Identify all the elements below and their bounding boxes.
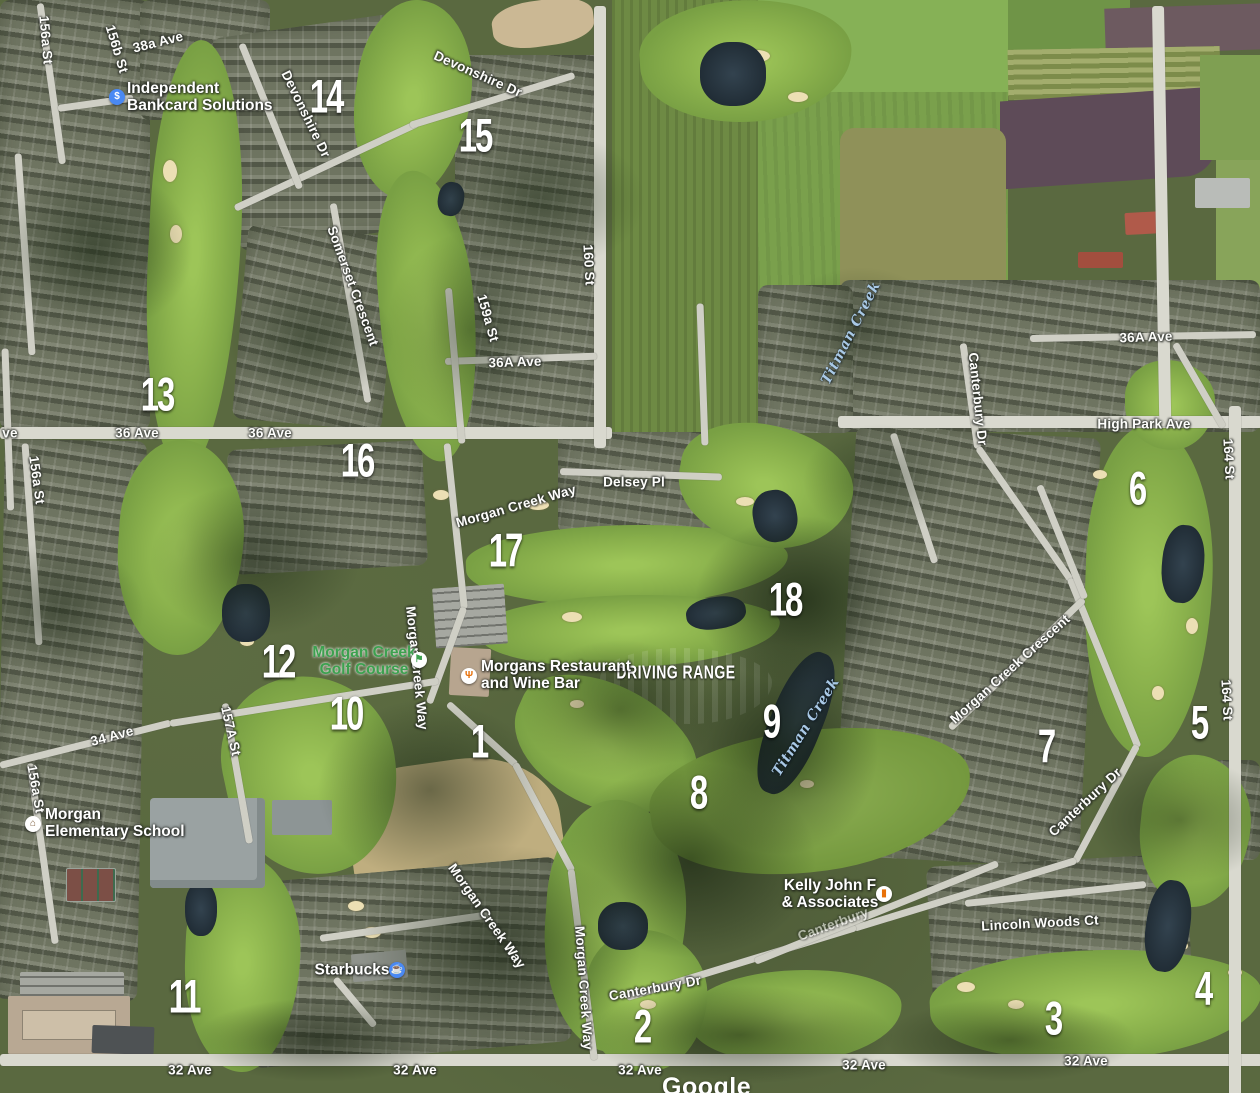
kelly-john-f-associates-icon[interactable]: ▮ [876,886,892,902]
street-label: 36 Ave [115,426,159,441]
street-label: 156a St [36,15,55,65]
hole-marker-7: 7 [1038,723,1054,770]
creek-label: Titman Creek [769,675,843,779]
hole-marker-18: 18 [769,576,801,623]
street-label: 159a St [474,293,502,344]
hole-marker-15: 15 [459,112,491,159]
hole-marker-4: 4 [1195,965,1211,1012]
street-label: 32 Ave [1064,1054,1108,1069]
street-label: 164 St [1220,438,1237,480]
morgan-creek-golf-course-icon[interactable]: ⚑ [411,652,427,668]
street-label: Canterbury Dr [608,973,703,1004]
hole-marker-2: 2 [634,1003,650,1050]
map-label-overlay: 156a St156b St38a AveDevonshire DrDevons… [0,0,1260,1093]
hole-marker-3: 3 [1045,995,1061,1042]
starbucks-icon[interactable]: ☕ [389,962,405,978]
street-label: Delsey Pl [603,475,665,490]
hole-marker-16: 16 [341,437,373,484]
morgan-elementary-school-icon[interactable]: ⌂ [25,816,41,832]
street-label: 34 Ave [89,723,135,749]
creek-label: Titman Creek [818,279,884,387]
poi-label-morgan-creek-golf-course[interactable]: Morgan CreekGolf Course [312,644,415,678]
street-label: ve [2,426,17,441]
independent-bankcard-solutions-icon[interactable]: $ [109,89,125,105]
satellite-map-canvas[interactable]: 156a St156b St38a AveDevonshire DrDevons… [0,0,1260,1093]
street-label: 36A Ave [488,354,542,371]
morgans-restaurant-and-wine-bar-icon[interactable]: Ψ [461,668,477,684]
street-label: High Park Ave [1097,417,1190,432]
street-label: 36A Ave [1119,329,1173,346]
street-label: 157A St [218,705,244,758]
hole-marker-9: 9 [763,698,779,745]
street-label: 156b St [103,23,132,75]
hole-marker-1: 1 [471,718,487,765]
hole-marker-5: 5 [1191,699,1207,746]
hole-marker-14: 14 [310,73,342,120]
street-label: 32 Ave [618,1063,662,1078]
hole-marker-10: 10 [330,690,362,737]
street-label: Canterbury Dr [966,352,991,446]
driving-range-label: DRIVING RANGE [616,663,735,684]
google-watermark[interactable]: Google [662,1073,751,1093]
street-label: Canterbury Dr [1046,765,1125,840]
poi-label-starbucks[interactable]: Starbucks [315,962,390,979]
poi-label-kelly-john-f-associates[interactable]: Kelly John F& Associates [782,877,879,911]
poi-label-morgan-elementary-school[interactable]: MorganElementary School [45,806,185,840]
street-label: 160 St [580,244,597,286]
street-label: Lincoln Woods Ct [981,912,1099,933]
street-label: 156a St [26,455,48,505]
hole-marker-6: 6 [1129,465,1145,512]
street-label: Morgan Creek Way [445,861,529,971]
street-label: 32 Ave [168,1063,212,1078]
street-label: Devonshire Dr [432,48,525,100]
hole-marker-8: 8 [690,769,706,816]
poi-label-morgans-restaurant-and-wine-bar[interactable]: Morgans Restaurantand Wine Bar [481,658,631,692]
street-label: Morgan Creek Way [572,926,596,1051]
hole-marker-12: 12 [262,638,294,685]
street-label: 32 Ave [842,1058,886,1073]
street-label: 32 Ave [393,1063,437,1078]
street-label: 36 Ave [248,426,292,441]
street-label: Morgan Creek Crescent [947,611,1073,726]
street-label: 38a Ave [131,28,185,55]
poi-label-independent-bankcard-solutions[interactable]: IndependentBankcard Solutions [127,80,273,114]
street-label: Somerset Crescent [324,224,381,348]
hole-marker-13: 13 [141,371,173,418]
hole-marker-11: 11 [169,973,200,1020]
hole-marker-17: 17 [489,527,521,574]
street-label: 164 St [1218,679,1235,721]
